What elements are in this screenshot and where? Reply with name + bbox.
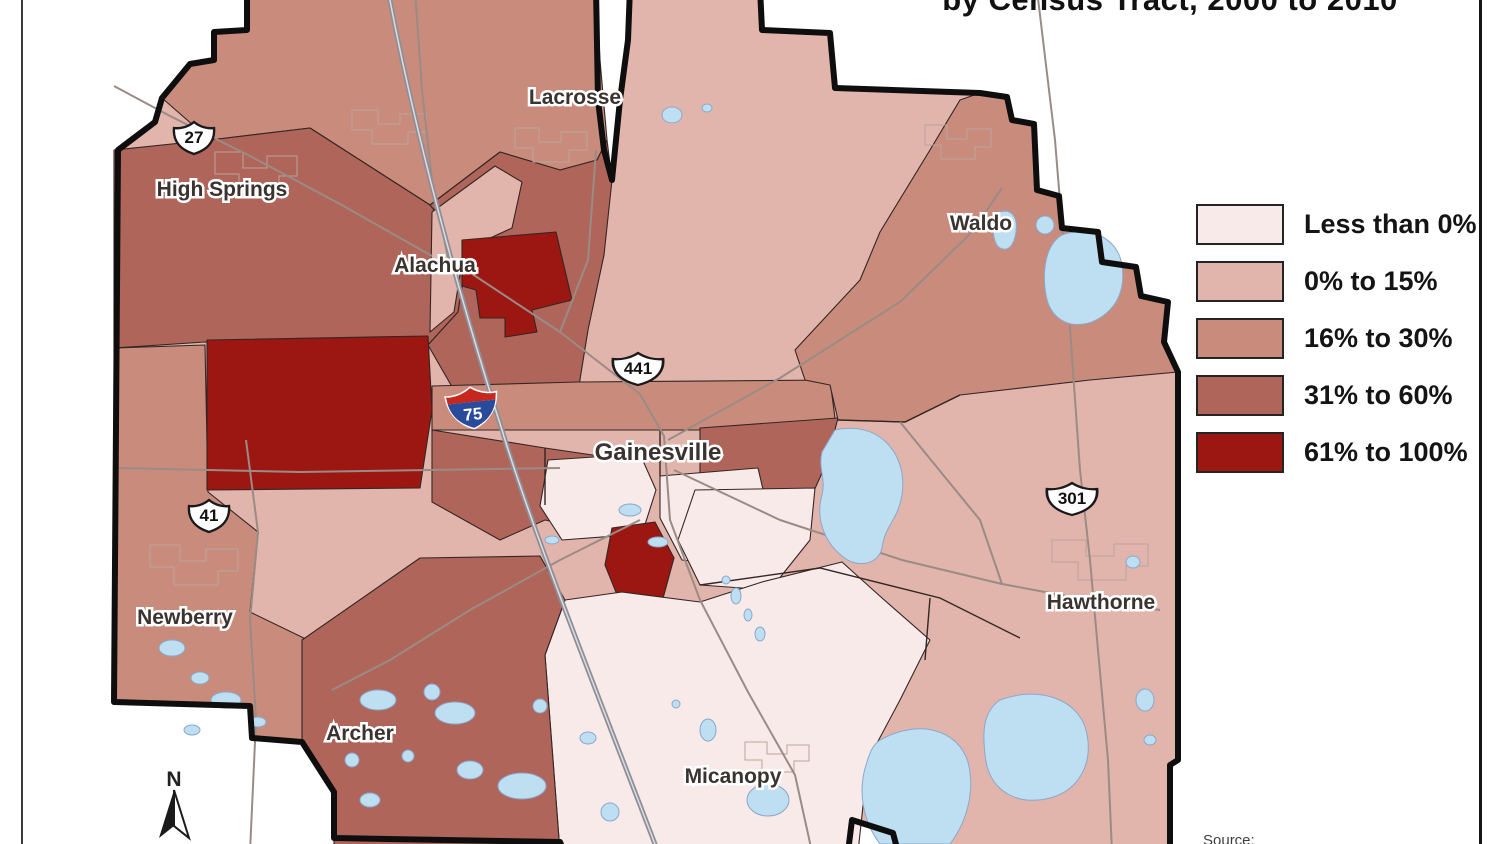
- city-label-newberry: Newberry: [137, 606, 233, 629]
- legend-row: 61% to 100%: [1196, 432, 1477, 473]
- legend-swatch-less-than-0: [1196, 204, 1284, 245]
- north-arrow: N: [159, 768, 189, 838]
- legend-label: Less than 0%: [1304, 209, 1477, 240]
- legend-label: 31% to 60%: [1304, 380, 1453, 411]
- map-frame-right-border: [1479, 0, 1482, 844]
- us-441-number: 441: [624, 359, 652, 378]
- legend-row: 16% to 30%: [1196, 318, 1477, 359]
- choropleth-map-figure: by Census Tract, 2000 to 2010: [0, 0, 1500, 844]
- city-label-micanopy: Micanopy: [685, 765, 782, 788]
- map-frame-left-border: [21, 0, 23, 844]
- us-41-number: 41: [200, 506, 219, 525]
- city-label-high-springs: High Springs: [157, 178, 288, 201]
- city-label-hawthorne: Hawthorne: [1047, 591, 1156, 614]
- legend-row: 31% to 60%: [1196, 375, 1477, 416]
- legend-swatch-16-30: [1196, 318, 1284, 359]
- city-label-alachua: Alachua: [394, 254, 476, 277]
- us-301-number: 301: [1058, 489, 1086, 508]
- legend-row: 0% to 15%: [1196, 261, 1477, 302]
- map-title: by Census Tract, 2000 to 2010: [770, 0, 1500, 18]
- legend-label: 16% to 30%: [1304, 323, 1453, 354]
- legend-label: 0% to 15%: [1304, 266, 1438, 297]
- lochloosa-lake: [984, 694, 1088, 800]
- city-label-waldo: Waldo: [950, 212, 1012, 235]
- legend-label: 61% to 100%: [1304, 437, 1468, 468]
- us-27-number: 27: [185, 128, 204, 147]
- legend-swatch-0-15: [1196, 261, 1284, 302]
- interstate-75-number: 75: [462, 404, 483, 425]
- source-note: Source:: [1203, 832, 1255, 844]
- map-legend: Less than 0% 0% to 15% 16% to 30% 31% to…: [1196, 204, 1477, 489]
- city-label-lacrosse: Lacrosse: [529, 86, 621, 109]
- legend-row: Less than 0%: [1196, 204, 1477, 245]
- north-arrow-label: N: [166, 768, 181, 791]
- legend-swatch-61-100: [1196, 432, 1284, 473]
- legend-swatch-31-60: [1196, 375, 1284, 416]
- city-label-gainesville: Gainesville: [595, 439, 722, 466]
- city-label-archer: Archer: [326, 722, 394, 745]
